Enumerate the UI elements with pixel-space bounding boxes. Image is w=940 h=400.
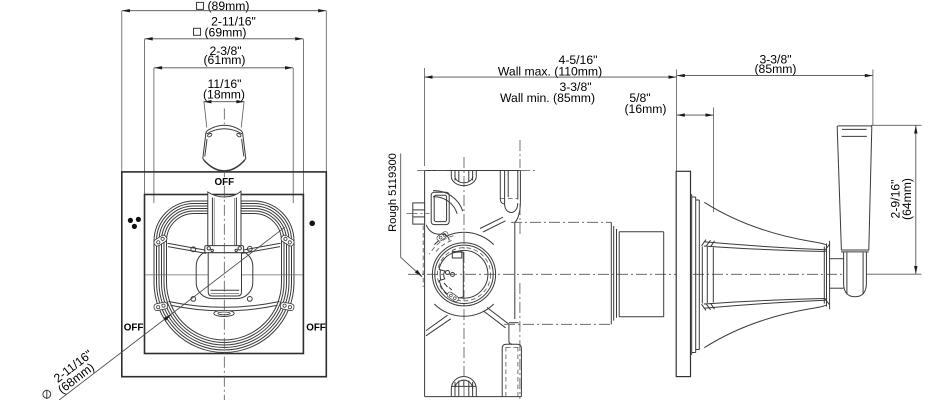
svg-text:(61mm): (61mm) (204, 53, 246, 67)
svg-text:(64mm): (64mm) (900, 178, 914, 220)
svg-text:Rough 5119300: Rough 5119300 (387, 153, 399, 232)
svg-text:OFF: OFF (306, 323, 326, 334)
svg-text:(18mm): (18mm) (203, 87, 245, 101)
svg-text:(85mm): (85mm) (755, 62, 797, 76)
svg-text:(69mm): (69mm) (205, 26, 247, 40)
svg-text:OFF: OFF (124, 323, 144, 334)
svg-text:(16mm): (16mm) (625, 102, 667, 116)
svg-text:Wall max. (110mm): Wall max. (110mm) (498, 64, 602, 78)
svg-text:(89mm): (89mm) (208, 0, 250, 13)
svg-text:Wall min. (85mm): Wall min. (85mm) (500, 91, 595, 105)
